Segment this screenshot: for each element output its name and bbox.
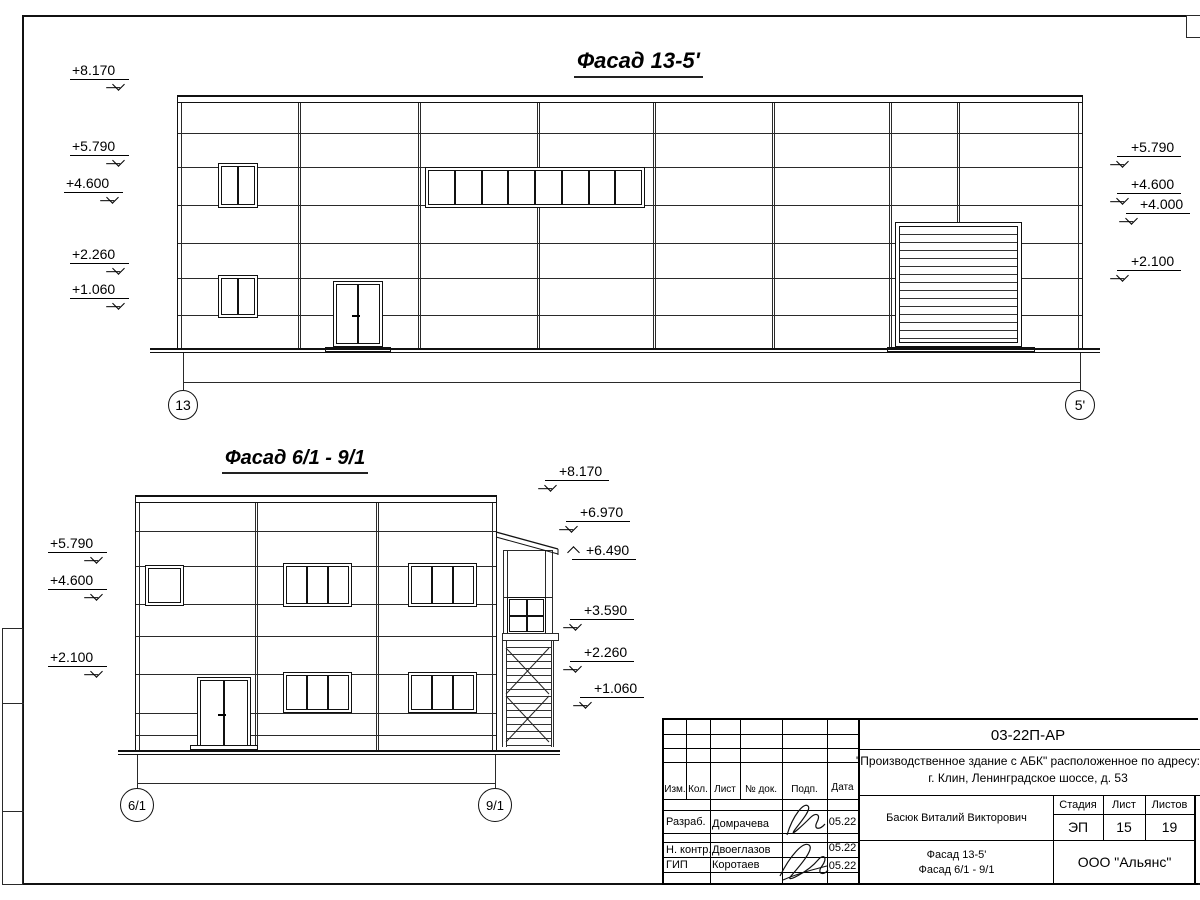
label: Басюк Виталий Викторович [886, 812, 1027, 824]
level-mark: +5.790 [70, 139, 129, 156]
axis-label: 6/1 [128, 798, 146, 813]
level-mark: +1.060 [580, 681, 644, 698]
divider [3, 811, 24, 812]
label: Дата [831, 782, 853, 793]
facade-6-1-9-1 [135, 495, 497, 750]
label: Лист [714, 784, 736, 795]
pane [452, 567, 473, 603]
pane [327, 676, 348, 709]
tb-stage-label: Стадия [1053, 795, 1103, 814]
pane [237, 279, 254, 314]
panel-joint [178, 133, 1082, 134]
level-arrow-icon [112, 262, 125, 275]
pane [534, 171, 561, 204]
tb-line [664, 799, 860, 800]
level-arrow-icon [90, 665, 103, 678]
pane [412, 676, 431, 709]
pane [588, 171, 615, 204]
level-mark: +3.590 [570, 603, 634, 620]
tb-sheet-label: Лист [1103, 795, 1145, 814]
window [145, 565, 184, 606]
stair-roof-and-bracing [490, 525, 570, 755]
panel-joint [136, 636, 496, 637]
level-value: +2.100 [1117, 254, 1181, 271]
divider [3, 703, 24, 704]
pane [149, 569, 180, 602]
column-line [537, 103, 540, 348]
axis-bubble: 6/1 [120, 788, 154, 822]
facade2-title: Фасад 6/1 - 9/1 [222, 447, 368, 474]
tb-role: Разраб. [666, 812, 710, 831]
tb-role: ГИП [666, 858, 710, 872]
tb-line [664, 734, 860, 735]
label: ГИП [666, 859, 688, 871]
axis-line [183, 353, 184, 390]
level-value: +6.490 [572, 543, 636, 560]
door-handle-icon [352, 315, 360, 317]
level-value: +1.060 [580, 681, 644, 698]
sectional-gate [895, 222, 1022, 347]
parapet [177, 95, 1083, 103]
pane [306, 676, 327, 709]
pane [452, 676, 473, 709]
tb-sheets-value: 19 [1145, 814, 1194, 840]
label: Подп. [791, 784, 818, 795]
tb-col-ndok: № док. [740, 780, 782, 799]
tb-date: 05.22 [827, 859, 858, 873]
level-mark: +4.600 [48, 573, 107, 590]
level-value: +5.790 [70, 139, 129, 156]
level-value: +4.600 [1117, 177, 1181, 194]
label: ООО "Альянс" [1078, 854, 1172, 870]
level-arrow-icon [569, 660, 582, 673]
frame-corner-box [1186, 15, 1200, 38]
pane [412, 567, 431, 603]
level-value: +2.260 [70, 247, 129, 264]
frame-side-stamp [2, 628, 23, 885]
column-line [376, 503, 379, 750]
level-mark: +2.100 [1117, 254, 1181, 271]
triple-window [283, 672, 352, 713]
tb-col-izm: Изм. [664, 780, 686, 799]
tb-line [664, 762, 860, 763]
level-value: +8.170 [70, 63, 129, 80]
pane [454, 171, 481, 204]
pane [429, 171, 454, 204]
tb-date: 05.22 [827, 812, 858, 831]
tb-project-line2: г. Клин, Ленинградское шоссе, д. 53 [860, 770, 1196, 786]
panel-joint [136, 713, 496, 714]
frame-top-line [22, 15, 1200, 17]
label: Кол. [688, 784, 708, 795]
label: г. Клин, Ленинградское шоссе, д. 53 [928, 771, 1128, 785]
level-arrow-icon [112, 154, 125, 167]
level-arrow-icon [112, 297, 125, 310]
column-line [418, 103, 421, 348]
panel-joint [136, 531, 496, 532]
pane [614, 171, 641, 204]
label: № док. [745, 784, 777, 795]
tb-sheet-value: 15 [1103, 814, 1145, 840]
level-value: +5.790 [48, 536, 107, 553]
axis-dim-line [183, 382, 1080, 383]
column-line [255, 503, 258, 750]
pane [431, 676, 452, 709]
level-value: +8.170 [545, 464, 609, 481]
pane [327, 567, 348, 603]
axis-line [495, 755, 496, 788]
tb-line [664, 748, 860, 749]
pane [287, 567, 306, 603]
pane [306, 567, 327, 603]
label: Разраб. [666, 816, 706, 828]
pane [287, 676, 306, 709]
tb-drawing-title: Фасад 13-5' Фасад 6/1 - 9/1 [860, 844, 1053, 882]
level-value: +3.590 [570, 603, 634, 620]
level-arrow-icon [1116, 155, 1129, 168]
level-mark: +8.170 [70, 63, 129, 80]
level-mark: +1.060 [70, 282, 129, 299]
triple-window [283, 563, 352, 607]
level-mark: +6.970 [566, 505, 630, 522]
label: Н. контр. [666, 844, 711, 856]
level-mark: +4.600 [64, 176, 123, 193]
level-mark: +8.170 [545, 464, 609, 481]
label: Лист [1112, 799, 1136, 811]
value: 15 [1116, 819, 1132, 835]
pane [507, 171, 534, 204]
level-value: +4.600 [64, 176, 123, 193]
level-arrow-icon [1116, 269, 1129, 282]
label: 05.22 [829, 860, 857, 872]
axis-label: 13 [175, 397, 191, 413]
column-line [772, 103, 775, 348]
level-value: +4.000 [1126, 197, 1190, 214]
label: Коротаев [712, 859, 760, 871]
label: "Производственное здание с АБК" располож… [856, 754, 1200, 768]
label: 05.22 [829, 842, 857, 854]
pane [222, 167, 237, 204]
level-arrow-icon [579, 696, 592, 709]
tb-col-kol: Кол. [686, 780, 710, 799]
tb-company: ООО "Альянс" [1053, 840, 1196, 883]
level-arrow-icon [112, 78, 125, 91]
label: Изм. [664, 784, 685, 795]
tb-col-list: Лист [710, 780, 740, 799]
value: ЭП [1068, 819, 1088, 835]
tb-line [860, 749, 1200, 750]
level-value: +2.260 [570, 645, 634, 662]
level-mark: +2.100 [48, 650, 107, 667]
door-leaf [337, 285, 357, 343]
window [218, 163, 258, 208]
tb-line [710, 720, 711, 883]
axis-label: 9/1 [486, 798, 504, 813]
signature-dvoeglazov-korotaev [778, 838, 830, 884]
level-arrow-icon [90, 588, 103, 601]
double-door [333, 281, 383, 347]
tb-line [664, 833, 860, 834]
tb-role: Н. контр. [666, 843, 710, 857]
tb-stage-value: ЭП [1053, 814, 1103, 840]
axis-label: 5' [1075, 397, 1085, 413]
facade1-title: Фасад 13-5' [574, 48, 703, 78]
parapet [135, 495, 497, 503]
triple-window [408, 672, 477, 713]
axis-bubble: 13 [168, 390, 198, 420]
level-mark: +5.790 [48, 536, 107, 553]
drawing-sheet: Фасад 13-5' [0, 0, 1200, 900]
tb-name: Домрачева [712, 814, 782, 833]
wall-inner-line [181, 103, 182, 348]
tb-date: 05.22 [827, 841, 858, 855]
wall-inner-line [1078, 103, 1079, 348]
level-arrow-icon [106, 191, 119, 204]
window [218, 275, 258, 318]
ground-line [118, 750, 560, 755]
axis-bubble: 9/1 [478, 788, 512, 822]
signature-domracheva [783, 797, 827, 842]
title-block: Изм. Кол. Лист № док. Подп. Дата Разраб.… [662, 718, 1198, 885]
level-value: +4.600 [48, 573, 107, 590]
triple-window [408, 563, 477, 607]
door-leaf [357, 285, 379, 343]
pane [222, 279, 237, 314]
level-value: +2.100 [48, 650, 107, 667]
level-arrow-icon [90, 551, 103, 564]
axis-line [1080, 353, 1081, 390]
column-line [889, 103, 892, 348]
level-arrow-icon [544, 479, 557, 492]
level-mark: +2.260 [570, 645, 634, 662]
tb-name: Коротаев [712, 858, 782, 872]
level-mark: +4.600 [1117, 177, 1181, 194]
label: 03-22П-АР [991, 727, 1065, 744]
level-value: +5.790 [1117, 140, 1181, 157]
door-leaf [223, 681, 247, 746]
tb-sheets-label: Листов [1145, 795, 1194, 814]
pane [561, 171, 588, 204]
label: 05.22 [829, 816, 857, 828]
label: Стадия [1059, 799, 1097, 811]
tb-col-data: Дата [827, 778, 858, 797]
facade-13-5 [177, 95, 1083, 348]
level-arrow-icon [1125, 212, 1138, 225]
label: Фасад 6/1 - 9/1 [919, 863, 995, 878]
ribbon-window [425, 167, 645, 208]
value: 19 [1162, 819, 1178, 835]
door-handle-icon [218, 714, 226, 716]
level-mark: +6.490 [572, 543, 636, 560]
ground-line [150, 348, 1100, 353]
column-line-partial [957, 103, 960, 222]
level-mark: +2.260 [70, 247, 129, 264]
label: Фасад 13-5' [927, 848, 987, 863]
tb-approver: Басюк Виталий Викторович [860, 795, 1053, 840]
double-door [197, 677, 251, 750]
level-arrow-icon [569, 618, 582, 631]
column-line [298, 103, 301, 348]
level-mark: +5.790 [1117, 140, 1181, 157]
axis-dim-line [137, 783, 495, 784]
label: Листов [1152, 799, 1188, 811]
level-mark: +4.000 [1126, 197, 1190, 214]
pane [481, 171, 508, 204]
panel-joint [136, 735, 496, 736]
pane [431, 567, 452, 603]
tb-doc-number: 03-22П-АР [860, 722, 1196, 748]
tb-line [664, 810, 860, 811]
label: Двоеглазов [712, 844, 770, 856]
level-value: +6.970 [566, 505, 630, 522]
label: Домрачева [712, 818, 769, 830]
tb-project-line1: "Производственное здание с АБК" располож… [860, 753, 1196, 769]
column-line [653, 103, 656, 348]
tb-name: Двоеглазов [712, 843, 782, 857]
level-value: +1.060 [70, 282, 129, 299]
pane [237, 167, 254, 204]
axis-bubble: 5' [1065, 390, 1095, 420]
